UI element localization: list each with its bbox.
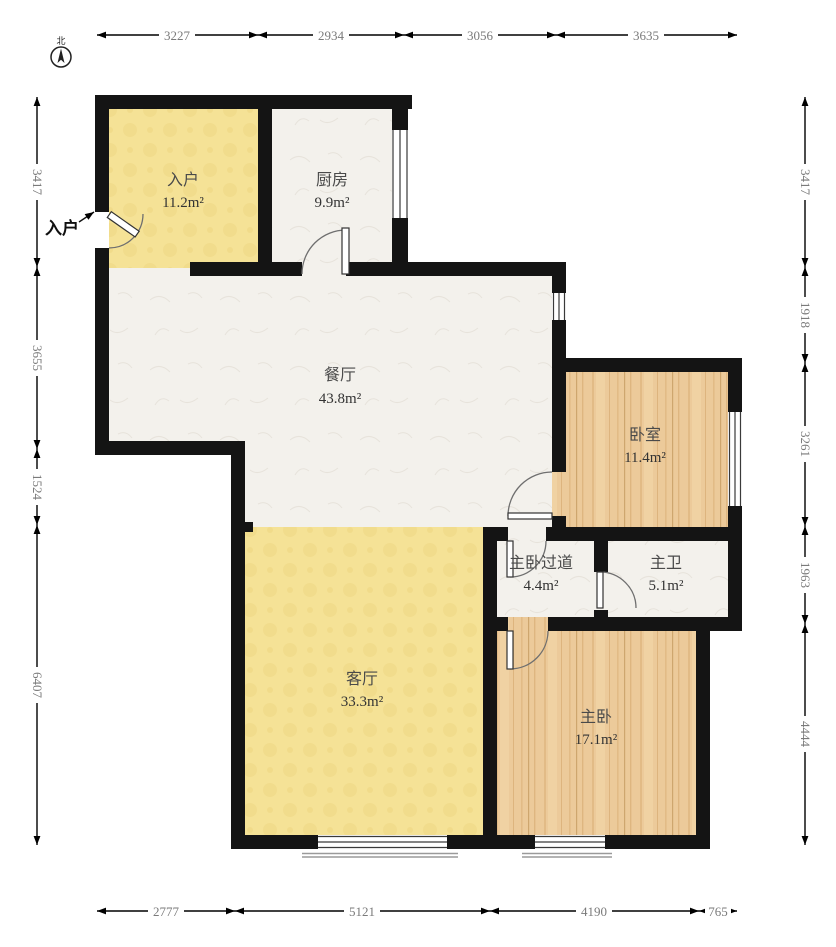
kitchen-name: 厨房	[316, 170, 348, 189]
dim-top-2: 2934	[318, 28, 345, 43]
master-window-sill	[522, 854, 612, 858]
dim-top-3: 3056	[467, 28, 494, 43]
floors	[109, 109, 728, 835]
dim-right-1: 3417	[798, 169, 813, 196]
bath-area: 5.1m²	[649, 578, 684, 594]
dimension-bottom: 2777 5121 4190 765	[97, 904, 737, 919]
dim-bottom-3: 4190	[581, 904, 607, 919]
dim-right-4: 1963	[798, 562, 813, 588]
dim-right-3: 3261	[798, 431, 813, 457]
dim-bottom-2: 5121	[349, 904, 375, 919]
master-name: 主卧	[580, 707, 612, 726]
dim-left-4: 6407	[30, 672, 45, 699]
dimension-right: 3417 1918 3261 1963 4444	[798, 97, 813, 845]
living-area: 33.3m²	[341, 694, 384, 710]
entry-marker: 入户	[45, 212, 94, 239]
dimension-top: 3227 2934 3056 3635	[97, 28, 737, 43]
dim-right-2: 1918	[798, 302, 813, 328]
master-bedroom-floor	[497, 617, 696, 835]
dim-top-4: 3635	[633, 28, 659, 43]
dining-name: 餐厅	[324, 365, 356, 384]
compass-needle-icon	[58, 49, 65, 64]
compass: 北	[51, 36, 71, 67]
dining-window	[552, 293, 566, 320]
dim-left-3: 1524	[30, 474, 45, 501]
bedroom-area: 11.4m²	[624, 450, 666, 466]
corridor-name: 主卧过道	[509, 553, 573, 572]
master-bedroom-window	[522, 835, 612, 857]
bath-name: 主卫	[650, 553, 682, 572]
living-room-window	[302, 835, 458, 857]
entry-hall-area: 11.2m²	[162, 195, 204, 211]
floor-plan-page: 入户 11.2m² 厨房 9.9m² 餐厅 43.8m² 卧室 11.4m² 主…	[0, 0, 836, 943]
compass-north-label: 北	[56, 36, 65, 47]
living-name: 客厅	[346, 669, 378, 688]
entry-arrow-icon	[79, 212, 94, 222]
dimension-left: 3417 3655 1524 6407	[30, 97, 45, 845]
kitchen-window	[392, 130, 408, 218]
bedroom-window	[728, 412, 742, 506]
living-window-sill	[302, 854, 458, 858]
dim-right-5: 4444	[798, 721, 813, 748]
entry-hall-name: 入户	[167, 170, 199, 189]
floor-plan-drawing: 入户 11.2m² 厨房 9.9m² 餐厅 43.8m² 卧室 11.4m² 主…	[0, 0, 836, 943]
kitchen-area: 9.9m²	[315, 195, 350, 211]
dim-top-1: 3227	[164, 28, 191, 43]
dim-left-2: 3655	[30, 345, 45, 371]
corridor-area: 4.4m²	[524, 578, 559, 594]
master-area: 17.1m²	[575, 732, 618, 748]
entry-marker-label: 入户	[45, 218, 79, 239]
dim-bottom-4: 765	[708, 904, 728, 919]
bedroom-name: 卧室	[629, 425, 661, 444]
dining-area: 43.8m²	[319, 391, 362, 407]
dim-left-1: 3417	[30, 169, 45, 196]
dim-bottom-1: 2777	[153, 904, 180, 919]
